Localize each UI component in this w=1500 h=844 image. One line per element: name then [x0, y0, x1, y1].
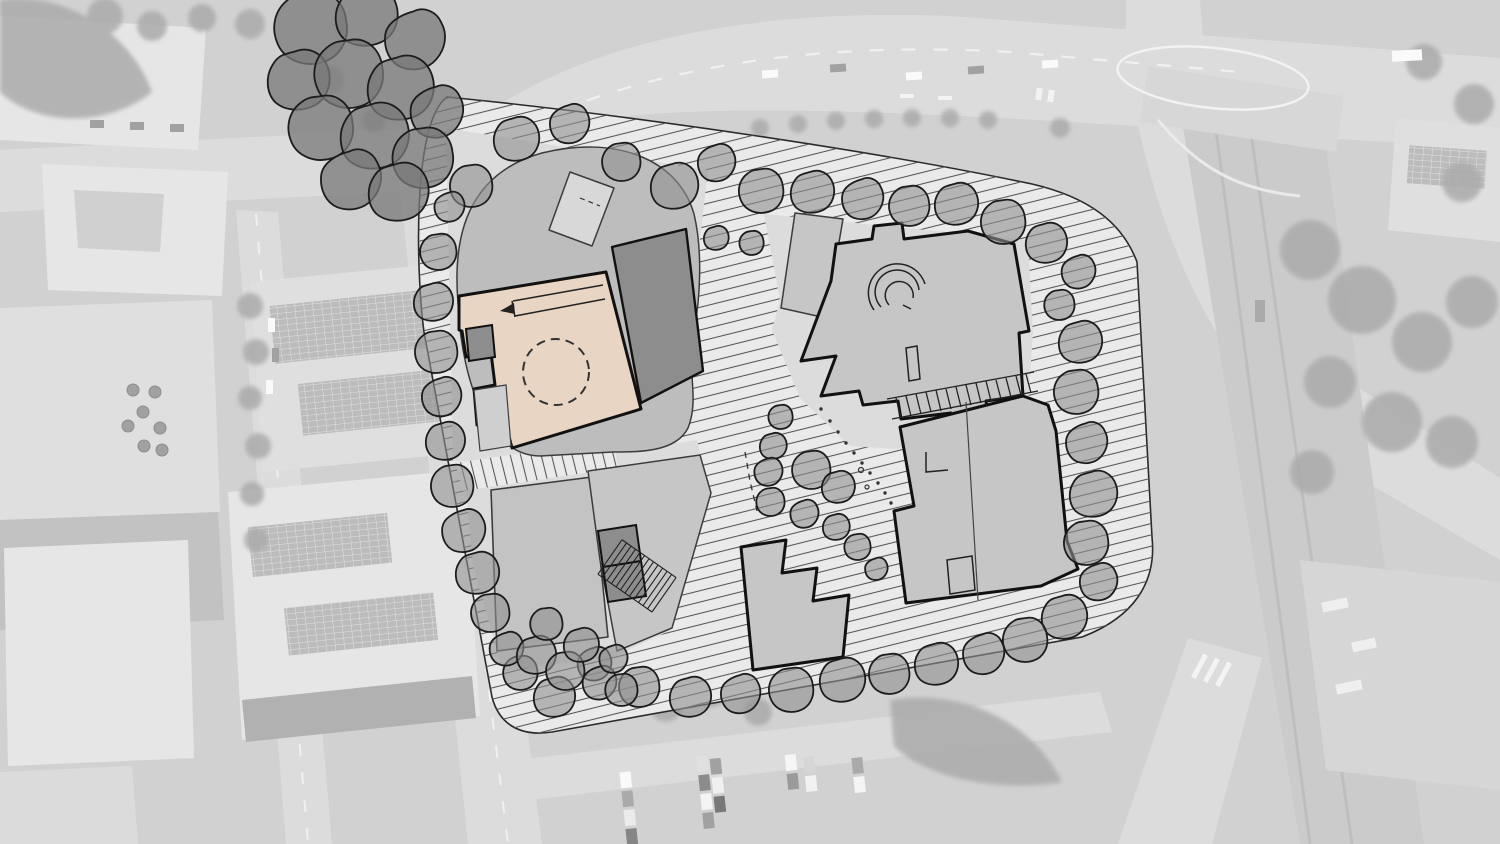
- roof-access-dark-rect: [466, 325, 495, 361]
- annex-rect: [474, 385, 511, 451]
- site-plan-screenshot: [0, 0, 1500, 844]
- plan-canvas: [0, 0, 1500, 844]
